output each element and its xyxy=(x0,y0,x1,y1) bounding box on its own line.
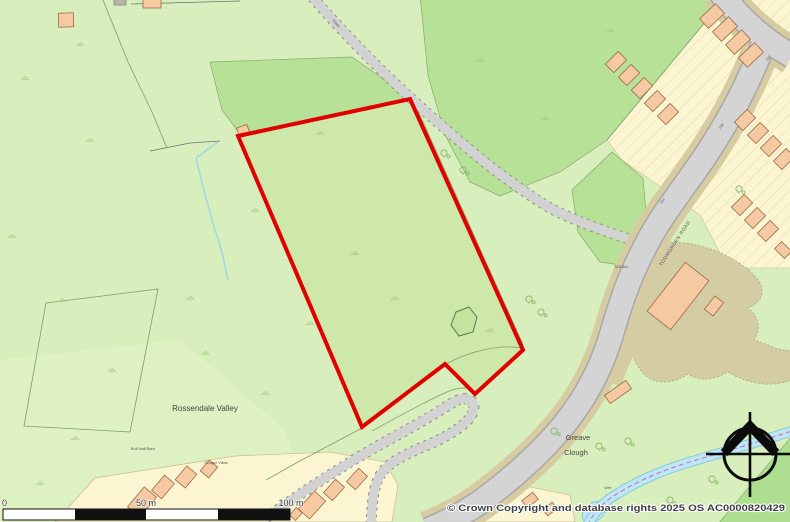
scale-label-start: 0 xyxy=(2,498,7,508)
label-weir: Weir xyxy=(604,486,612,490)
scale-label-end: 100 m xyxy=(278,498,303,508)
label-spot-height: 318.8m xyxy=(614,264,628,269)
scale-label-mid: 50 m xyxy=(136,498,156,508)
label-chapel-villas: Chapel Villas xyxy=(204,460,227,465)
os-map-image: Rossendale Valley Greave Clough Bull Hal… xyxy=(0,0,790,522)
map-canvas[interactable]: Rossendale Valley Greave Clough Bull Hal… xyxy=(0,0,790,522)
label-greave: Greave xyxy=(566,433,591,442)
attribution-text: © Crown Copyright and database rights 20… xyxy=(447,503,785,513)
label-clough: Clough xyxy=(564,448,588,457)
label-rossendale-valley: Rossendale Valley xyxy=(172,404,238,413)
label-bull-hall-barn: Bull Hall Barn xyxy=(131,446,155,451)
